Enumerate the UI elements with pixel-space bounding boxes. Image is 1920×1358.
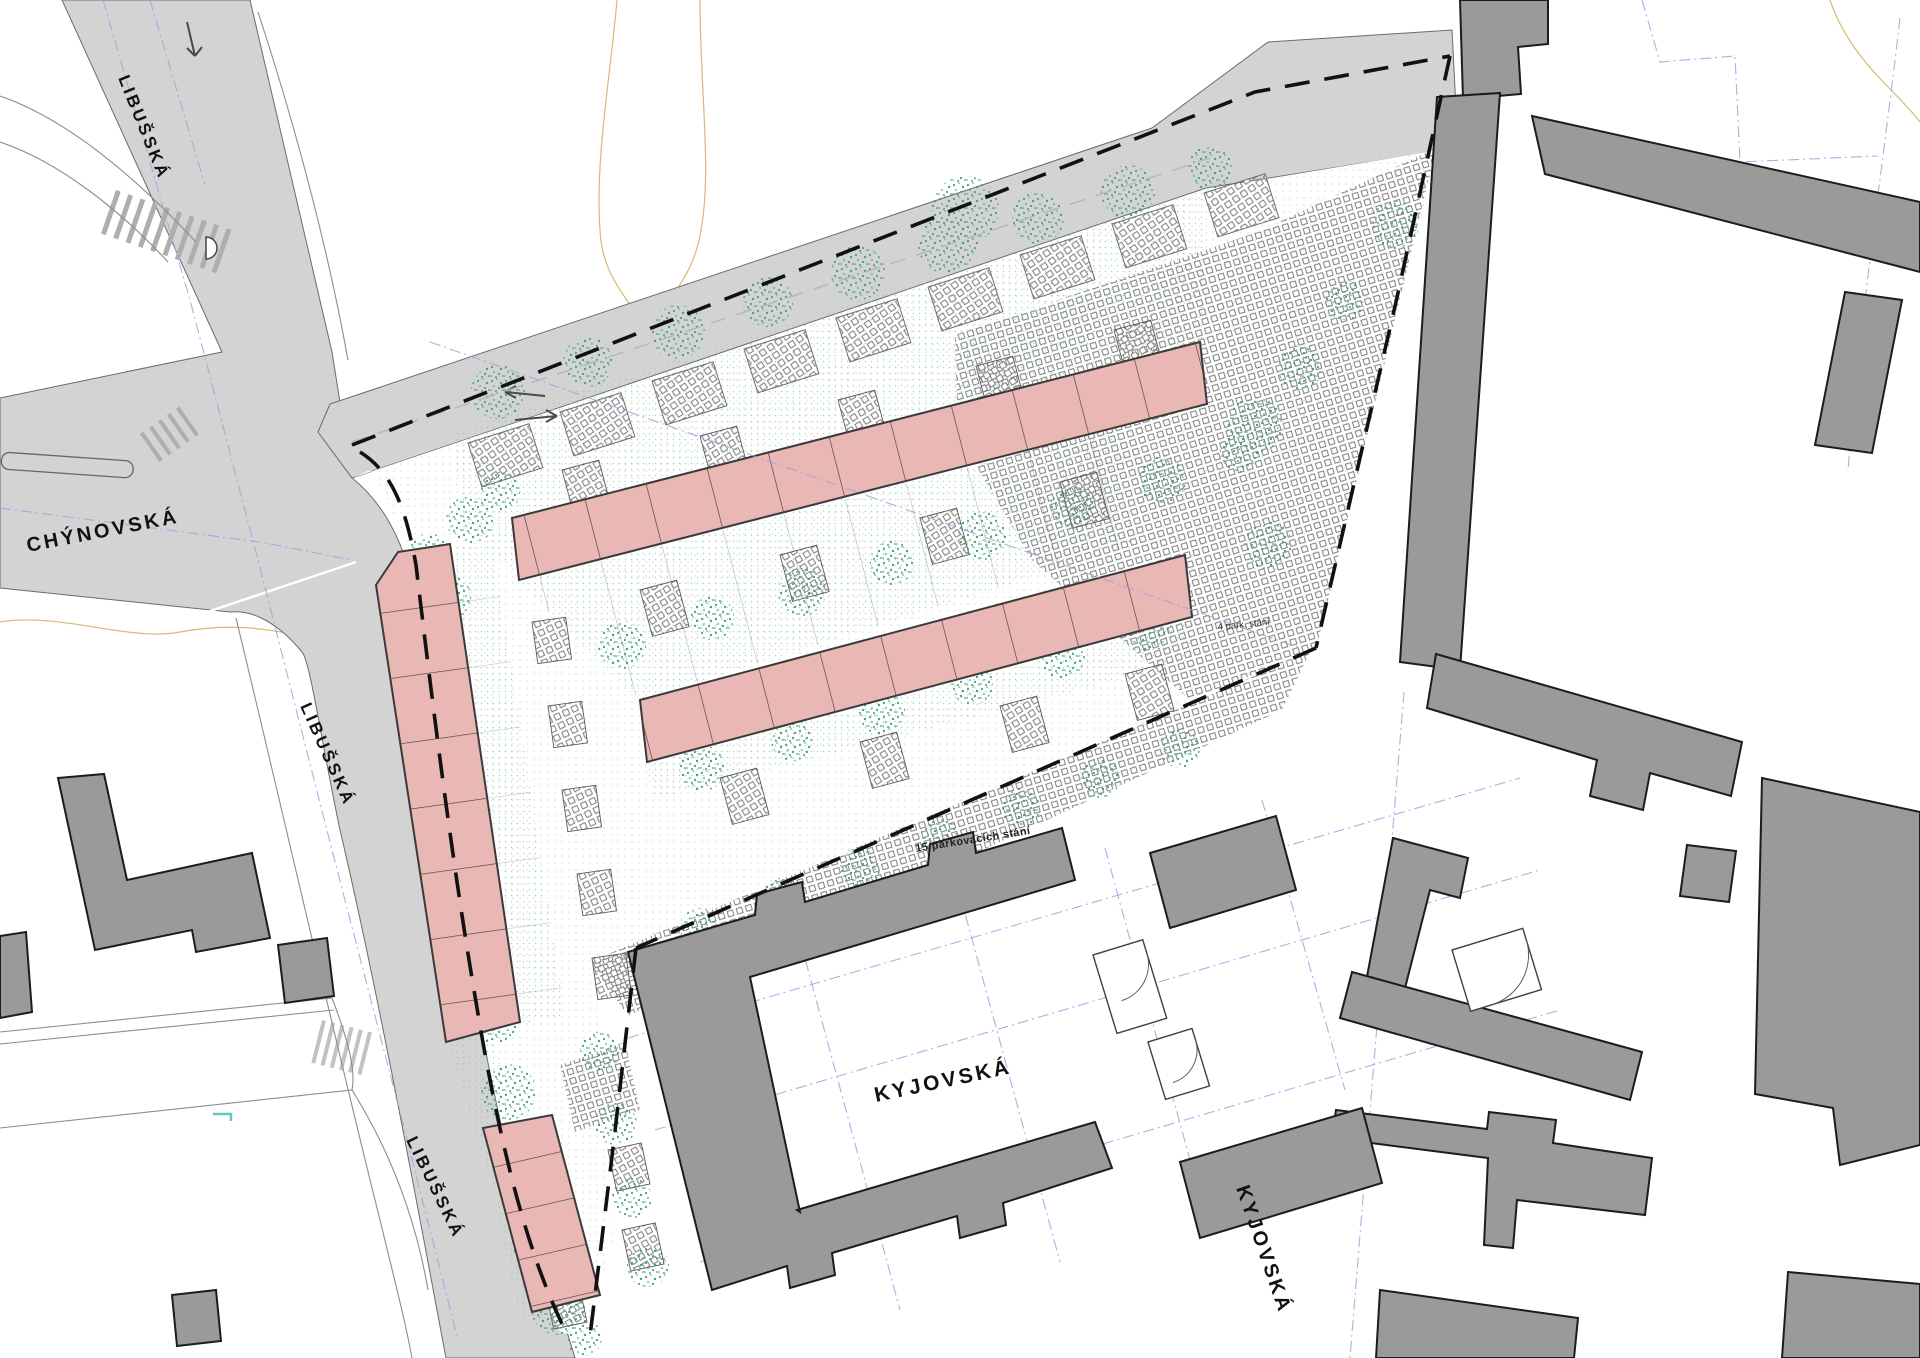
existing-building [0,932,32,1018]
existing-building [1755,778,1920,1165]
existing-building [58,774,270,952]
site-plan-canvas: LIBUŠSKÁ CHÝNOVSKÁ LIBUŠSKÁ LIBUŠSKÁ KYJ… [0,0,1920,1358]
existing-building [1376,1290,1578,1358]
existing-building [1427,654,1742,810]
existing-building [1532,116,1920,272]
survey-mark [213,1114,231,1121]
existing-building [1680,845,1736,902]
site-plan: LIBUŠSKÁ CHÝNOVSKÁ LIBUŠSKÁ LIBUŠSKÁ KYJ… [0,0,1920,1358]
existing-building [172,1290,221,1346]
street-label-kyjovska: KYJOVSKÁ [872,1055,1013,1107]
existing-building [1782,1272,1920,1358]
existing-building [278,938,334,1003]
existing-building [1460,0,1548,99]
existing-building [1815,292,1902,453]
existing-building [1366,838,1468,992]
